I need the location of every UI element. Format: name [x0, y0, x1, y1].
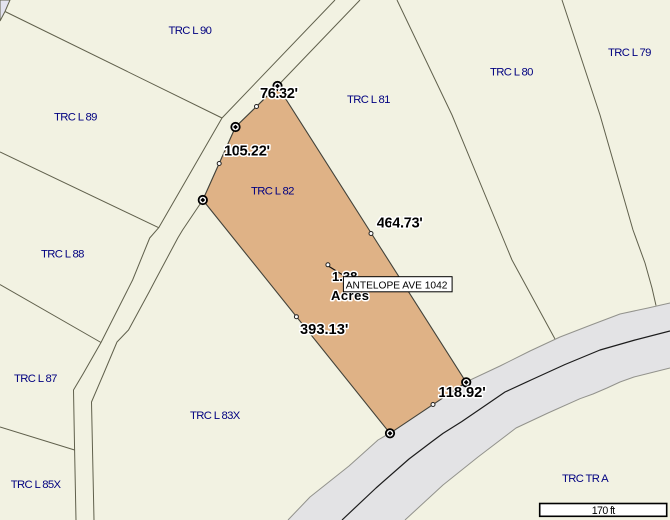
svg-text:393.13': 393.13' [300, 322, 348, 338]
svg-text:TRC L 80: TRC L 80 [490, 67, 533, 79]
svg-text:TRC L 90: TRC L 90 [169, 25, 212, 37]
svg-text:118.92': 118.92' [438, 385, 485, 401]
svg-text:TRC L 85X: TRC L 85X [11, 479, 62, 491]
svg-text:TRC L 87: TRC L 87 [14, 373, 57, 385]
svg-text:TRC L 89: TRC L 89 [54, 112, 97, 124]
svg-text:TRC L 82: TRC L 82 [251, 186, 294, 198]
svg-text:ANTELOPE AVE 1042: ANTELOPE AVE 1042 [346, 280, 448, 291]
svg-text:TRC L 81: TRC L 81 [347, 94, 390, 106]
svg-text:TRC L 88: TRC L 88 [41, 249, 84, 261]
svg-text:76.32': 76.32' [260, 86, 298, 102]
svg-text:170 ft: 170 ft [592, 505, 616, 517]
svg-text:105.22': 105.22' [224, 144, 270, 160]
svg-text:TRC L 79: TRC L 79 [608, 47, 651, 59]
svg-text:464.73': 464.73' [377, 216, 423, 232]
svg-text:TRC TR A: TRC TR A [562, 473, 609, 485]
svg-text:TRC L 83X: TRC L 83X [190, 410, 241, 422]
